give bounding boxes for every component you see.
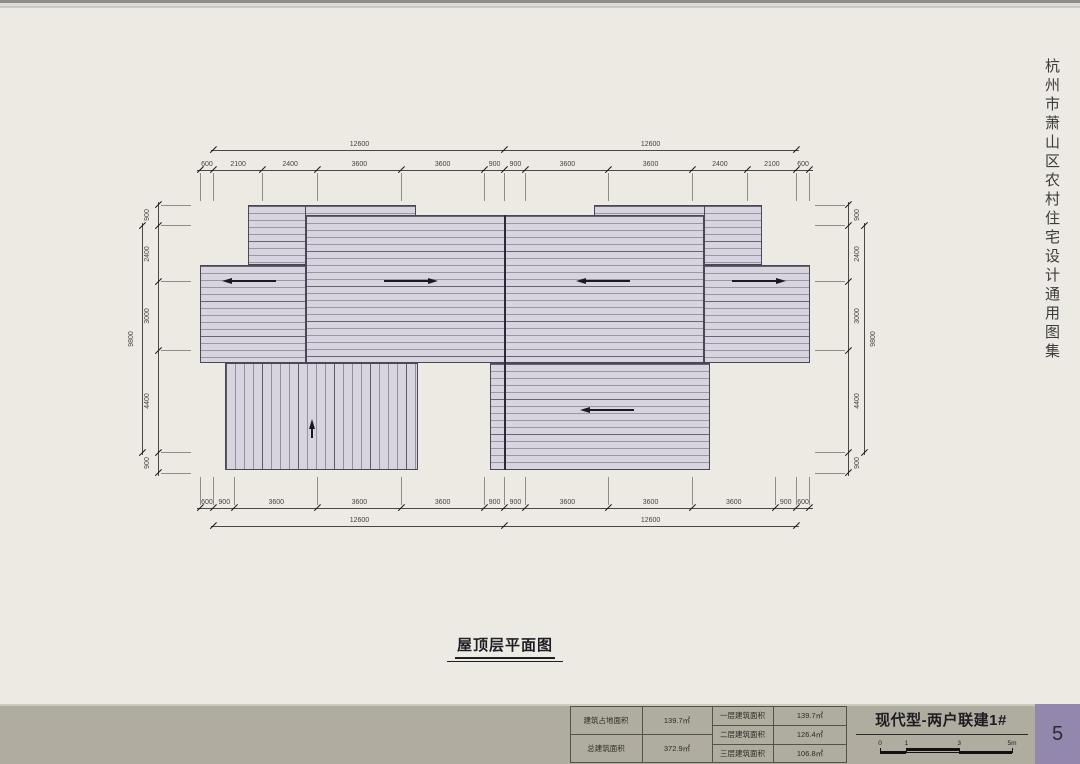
dim-line [142,223,143,455]
titleblock-rule [856,734,1028,735]
roof-panel-main-right [505,215,704,363]
dim-witness-line [161,281,191,282]
dim-label: 3600 [545,160,589,170]
scale-segment [906,748,959,751]
dim-line [197,170,813,171]
stats-label: 总建筑面积 [570,734,642,763]
scale-label: 5m [1007,740,1016,747]
dim-label: 600 [781,498,825,508]
dim-label: 3600 [254,498,298,508]
stats-label: 二层建筑面积 [712,725,773,744]
stats-value: 126.4㎡ [773,725,847,744]
scale-label: 0 [878,740,882,747]
dim-witness-line [401,173,402,201]
dim-label: 3600 [421,498,465,508]
dim-witness-line [815,225,845,226]
dim-witness-line [161,452,191,453]
roof-panel-lower-left [225,363,418,470]
arrow-line [588,409,634,410]
dim-label: 900 [143,441,153,485]
dim-witness-line [262,173,263,201]
dim-label: 3000 [853,294,863,338]
dim-witness-line [161,473,191,474]
dim-witness-line [692,173,693,201]
arrow-line [230,280,276,281]
dim-witness-line [809,173,810,201]
dim-witness-line [317,173,318,201]
dim-witness-line [213,173,214,201]
roof-panel-lower-right [490,363,710,470]
dim-label: 3600 [629,160,673,170]
arrow-line [732,280,778,281]
page-number: 5 [1052,723,1063,746]
stats-value: 372.9㎡ [642,734,712,763]
scale-bar: 0 1 3 5m [880,740,1012,756]
dim-label: 12600 [629,516,673,526]
dim-label: 2400 [698,160,742,170]
arrow-line [584,280,630,281]
dim-label: 900 [143,193,153,237]
dim-witness-line [401,477,402,505]
stats-value: 139.7㎡ [642,706,712,734]
drawing-title-text: 屋顶层平面图 [455,634,555,659]
dim-label: 3600 [337,160,381,170]
dim-witness-line [317,477,318,505]
dim-witness-line [815,281,845,282]
ridge-line [504,215,506,470]
dim-witness-line [608,173,609,201]
drawing-title: 屋顶层平面图 [440,634,570,662]
dim-label: 3600 [712,498,756,508]
dim-label: 2400 [143,232,153,276]
atlas-page: { "page": { "side_title": "杭州市萧山区农村住宅设计通… [0,0,1080,764]
dim-label: 900 [202,498,246,508]
dim-label: 2400 [268,160,312,170]
roof-panel-main-left [306,215,505,363]
dim-witness-line [525,173,526,201]
dim-label: 4400 [143,379,153,423]
stats-label: 一层建筑面积 [712,706,773,725]
dim-line [211,150,799,151]
dim-label: 4400 [853,379,863,423]
stats-value: 106.8㎡ [773,744,847,763]
scale-label: 3 [957,740,961,747]
dim-line [158,202,159,476]
dim-witness-line [692,477,693,505]
dim-label: 12600 [629,140,673,150]
arrow-line [384,280,430,281]
stats-value: 139.7㎡ [773,706,847,725]
dim-label: 2100 [216,160,260,170]
dim-line [211,526,799,527]
dim-witness-line [815,205,845,206]
dim-witness-line [200,173,201,201]
dim-label: 900 [853,193,863,237]
dim-label: 3600 [337,498,381,508]
dim-label: 2400 [853,232,863,276]
dim-label: 600 [781,160,825,170]
scale-label: 1 [905,740,909,747]
dim-label: 9800 [869,317,879,361]
dim-label: 3600 [545,498,589,508]
dim-label: 3600 [421,160,465,170]
dim-label: 900 [493,498,537,508]
page-number-block: 5 [1035,704,1080,764]
dim-witness-line [161,350,191,351]
roof-panel-upper-left-column [248,205,306,265]
dim-label: 3000 [143,294,153,338]
stats-label: 三层建筑面积 [712,744,773,763]
roof-panel-upper-right-column [704,205,762,265]
drawing-title-underline [447,661,563,662]
project-title: 现代型-两户联建1# [847,709,1035,730]
dim-label: 9800 [127,317,137,361]
dim-witness-line [161,225,191,226]
dim-witness-line [815,473,845,474]
scale-segment [880,751,906,754]
dim-label: 12600 [337,140,381,150]
arrow-head-icon [428,278,438,284]
dim-line [864,223,865,455]
dim-line [197,508,813,509]
dim-label: 900 [493,160,537,170]
scale-tick [1012,748,1013,753]
arrow-head-icon [776,278,786,284]
dim-witness-line [484,173,485,201]
stats-label: 建筑占地面积 [570,706,642,734]
dim-witness-line [815,452,845,453]
dim-line [848,202,849,476]
dim-witness-line [608,477,609,505]
arrow-line [311,428,312,438]
dim-label: 12600 [337,516,381,526]
dim-witness-line [747,173,748,201]
dim-witness-line [504,173,505,201]
dim-label: 3600 [629,498,673,508]
dim-label: 900 [853,441,863,485]
dim-witness-line [796,173,797,201]
scale-segment [959,751,1012,754]
dim-witness-line [161,205,191,206]
dim-witness-line [815,350,845,351]
